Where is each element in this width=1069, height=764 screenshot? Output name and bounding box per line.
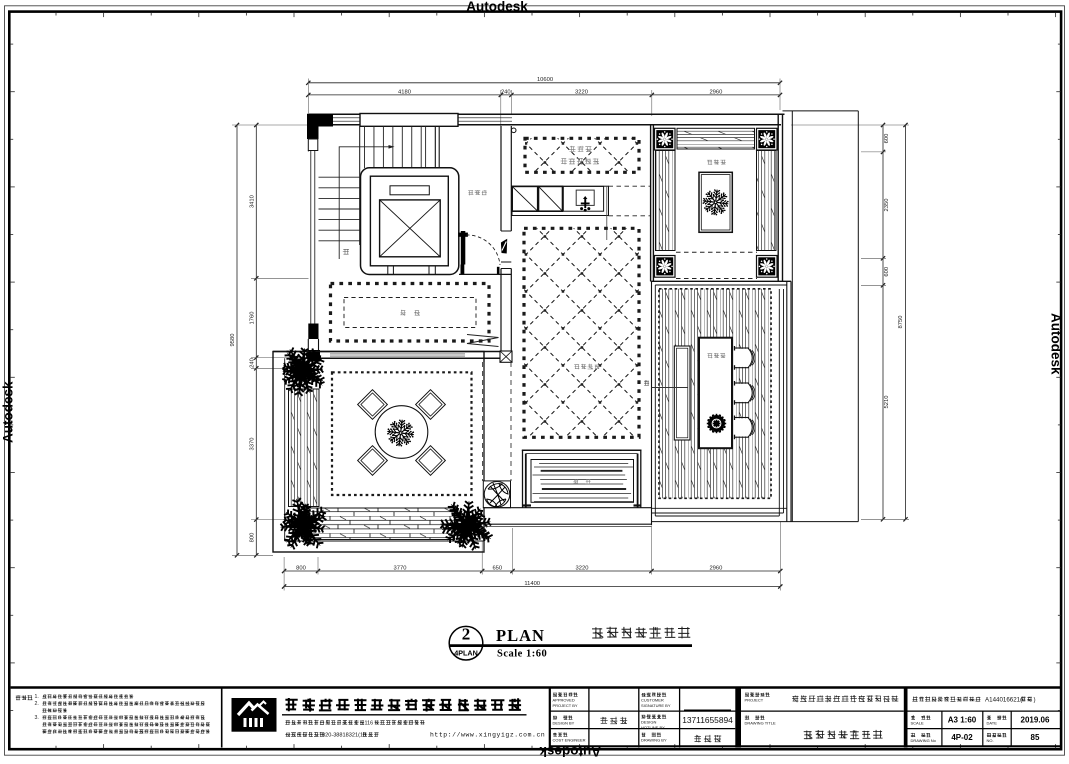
svg-text:4180: 4180: [398, 89, 411, 95]
svg-text:4PLAN: 4PLAN: [454, 649, 478, 658]
svg-text:800: 800: [296, 565, 306, 571]
svg-text:Autodesk: Autodesk: [466, 0, 528, 14]
svg-text:2960: 2960: [709, 89, 722, 95]
svg-text:SIGNATURE BY: SIGNATURE BY: [641, 703, 671, 708]
svg-text:PROJECT BY: PROJECT BY: [553, 703, 578, 708]
svg-text:1760: 1760: [250, 312, 256, 325]
svg-text:9580: 9580: [230, 334, 236, 347]
svg-text:2.: 2.: [35, 701, 39, 707]
svg-text:DRAWING TITLE: DRAWING TITLE: [745, 721, 776, 726]
svg-text:2: 2: [462, 625, 471, 644]
svg-text:COST ENGINEER: COST ENGINEER: [553, 738, 586, 743]
svg-text:240: 240: [501, 89, 511, 95]
svg-text:DRAWING BY: DRAWING BY: [641, 738, 667, 743]
svg-text:116: 116: [365, 720, 374, 726]
svg-text:4P-02: 4P-02: [951, 733, 973, 742]
svg-text:2350: 2350: [884, 199, 890, 212]
svg-text:2019.06: 2019.06: [1021, 716, 1050, 725]
svg-text:NO.: NO.: [987, 738, 994, 743]
svg-text:3.: 3.: [35, 715, 39, 721]
svg-text:PROJECT: PROJECT: [745, 698, 764, 703]
svg-text:3220: 3220: [576, 565, 589, 571]
svg-text:Autodesk: Autodesk: [1049, 313, 1064, 375]
svg-text:DRAWING No: DRAWING No: [911, 738, 937, 743]
svg-text:3220: 3220: [575, 89, 588, 95]
svg-text:800: 800: [250, 533, 256, 543]
svg-text:85: 85: [1031, 733, 1040, 742]
svg-text:600: 600: [884, 134, 890, 144]
svg-text:13711655894: 13711655894: [682, 715, 733, 725]
svg-text:SCALE: SCALE: [911, 721, 924, 726]
svg-text:A3 1:60: A3 1:60: [948, 716, 977, 725]
svg-text:650: 650: [492, 565, 502, 571]
svg-text:2960: 2960: [709, 565, 722, 571]
svg-text:HOTLINE BY: HOTLINE BY: [641, 725, 665, 730]
svg-text:http://www.xingyigz.com.cn: http://www.xingyigz.com.cn: [430, 732, 545, 739]
svg-text:PLAN: PLAN: [496, 626, 545, 645]
svg-text:11400: 11400: [524, 581, 540, 587]
svg-text:3770: 3770: [394, 565, 407, 571]
svg-text:): ): [1034, 696, 1036, 703]
svg-text:020-38818321(10: 020-38818321(10: [322, 732, 366, 738]
svg-text:Scale 1:60: Scale 1:60: [497, 649, 547, 660]
svg-text:Autodesk: Autodesk: [1, 381, 16, 443]
svg-text:8750: 8750: [898, 316, 904, 329]
svg-text:5210: 5210: [884, 396, 890, 409]
svg-text:DESIGN BY: DESIGN BY: [553, 721, 575, 726]
svg-text:3370: 3370: [250, 438, 256, 451]
svg-text:A144016621(: A144016621(: [985, 696, 1023, 703]
svg-text:1.: 1.: [35, 694, 39, 700]
svg-text:600: 600: [884, 267, 890, 277]
svg-text:DATE: DATE: [987, 721, 998, 726]
svg-text:10600: 10600: [537, 77, 553, 83]
svg-text:240: 240: [250, 358, 256, 368]
svg-text:3410: 3410: [250, 195, 256, 208]
